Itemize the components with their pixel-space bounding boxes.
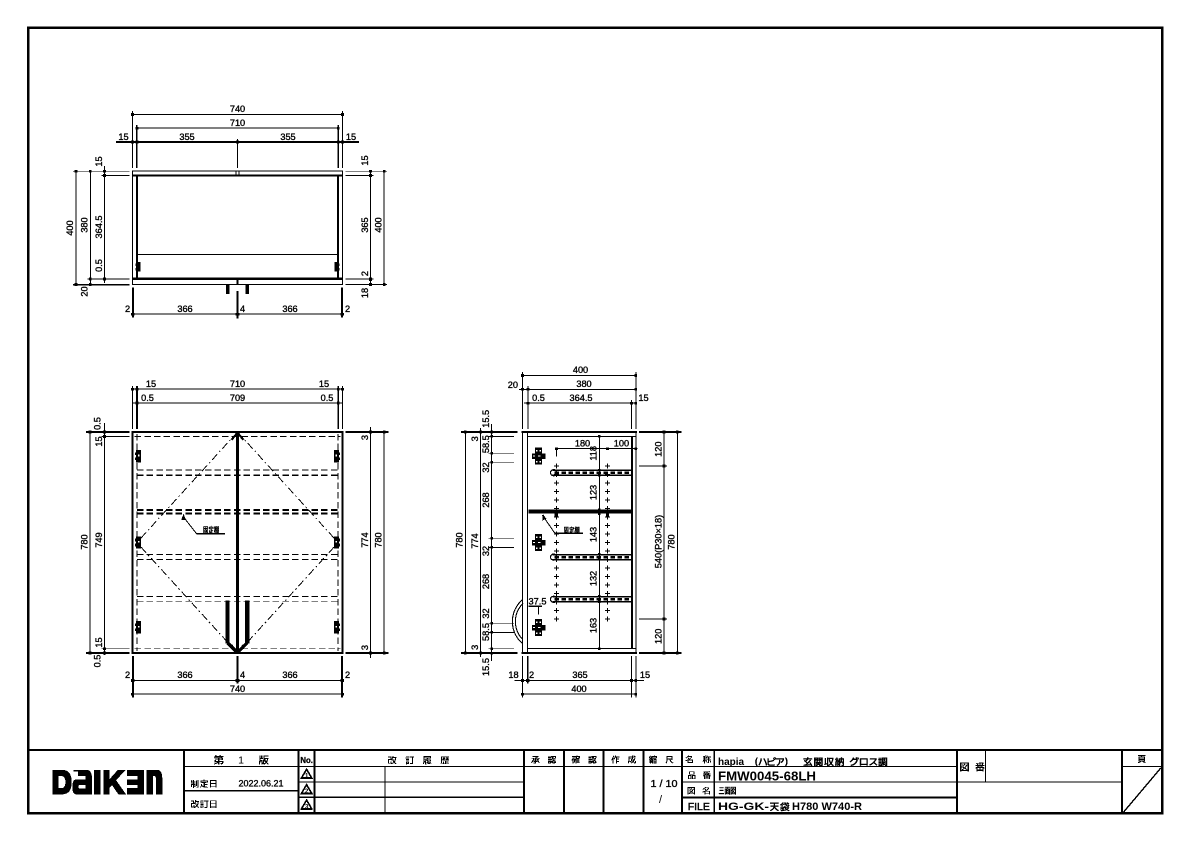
svg-text:0.5: 0.5 xyxy=(93,417,103,430)
svg-text:15: 15 xyxy=(346,132,356,142)
svg-text:143: 143 xyxy=(589,527,599,542)
svg-text:710: 710 xyxy=(230,379,245,389)
svg-text:FMW0045-68LH: FMW0045-68LH xyxy=(718,769,816,784)
svg-text:2022.06.21: 2022.06.21 xyxy=(239,779,284,789)
svg-text:780: 780 xyxy=(455,532,465,547)
svg-text:3: 3 xyxy=(305,803,309,810)
svg-text:364.5: 364.5 xyxy=(570,393,593,403)
svg-text:2: 2 xyxy=(305,788,309,795)
svg-text:780: 780 xyxy=(667,534,677,549)
svg-text:400: 400 xyxy=(573,365,588,375)
svg-text:123: 123 xyxy=(589,485,599,500)
svg-text:H780 W740-R: H780 W740-R xyxy=(792,801,862,813)
svg-text:15: 15 xyxy=(94,156,104,166)
svg-text:15.5: 15.5 xyxy=(481,658,491,676)
svg-text:18: 18 xyxy=(360,288,370,298)
svg-text:0.5: 0.5 xyxy=(141,393,154,403)
svg-text:2: 2 xyxy=(345,670,350,680)
svg-text:400: 400 xyxy=(65,220,75,235)
svg-text:15: 15 xyxy=(146,379,156,389)
svg-text:15: 15 xyxy=(94,637,104,647)
svg-text:400: 400 xyxy=(374,217,384,232)
svg-text:364.5: 364.5 xyxy=(94,216,104,239)
svg-text:355: 355 xyxy=(179,132,194,142)
svg-text:163: 163 xyxy=(589,618,599,633)
svg-text:132: 132 xyxy=(589,571,599,586)
svg-text:1 / 10: 1 / 10 xyxy=(651,779,678,790)
svg-text:FILE: FILE xyxy=(688,801,710,813)
svg-text:355: 355 xyxy=(280,132,295,142)
svg-text:HG-GK-: HG-GK- xyxy=(718,801,769,813)
svg-text:0.5: 0.5 xyxy=(93,655,103,668)
svg-text:749: 749 xyxy=(94,532,104,547)
svg-text:740: 740 xyxy=(230,104,245,114)
svg-text:hapia: hapia xyxy=(718,757,745,768)
svg-text:366: 366 xyxy=(282,304,297,314)
svg-text:366: 366 xyxy=(177,304,192,314)
svg-text:4: 4 xyxy=(240,670,245,680)
svg-text:2: 2 xyxy=(125,670,130,680)
svg-text:3: 3 xyxy=(360,435,370,440)
svg-text:100: 100 xyxy=(614,438,629,448)
svg-text:365: 365 xyxy=(572,670,587,680)
svg-text:2: 2 xyxy=(360,271,370,276)
svg-text:4: 4 xyxy=(240,304,245,314)
svg-text:366: 366 xyxy=(282,670,297,680)
svg-text:15: 15 xyxy=(640,670,650,680)
svg-text:2: 2 xyxy=(125,304,130,314)
svg-text:540(P30×18): 540(P30×18) xyxy=(653,515,663,568)
svg-text:32: 32 xyxy=(481,608,491,618)
svg-text:0.5: 0.5 xyxy=(321,393,334,403)
svg-text:0.5: 0.5 xyxy=(532,393,545,403)
svg-text:709: 709 xyxy=(230,393,245,403)
svg-text:780: 780 xyxy=(79,534,89,549)
svg-text:365: 365 xyxy=(360,217,370,232)
svg-text:180: 180 xyxy=(575,438,590,448)
svg-text:15: 15 xyxy=(638,393,648,403)
svg-text:15.5: 15.5 xyxy=(481,410,491,428)
svg-text:268: 268 xyxy=(481,574,491,589)
svg-text:15: 15 xyxy=(118,132,128,142)
svg-text:2: 2 xyxy=(529,670,534,680)
svg-text:15: 15 xyxy=(94,436,104,446)
svg-text:37.5: 37.5 xyxy=(529,596,547,606)
svg-text:20: 20 xyxy=(508,380,518,390)
svg-text:3: 3 xyxy=(470,436,480,441)
svg-text:0.5: 0.5 xyxy=(94,259,104,272)
svg-text:15: 15 xyxy=(319,379,329,389)
svg-text:2: 2 xyxy=(345,304,350,314)
svg-text:3: 3 xyxy=(470,645,480,650)
svg-text:No.: No. xyxy=(300,756,313,765)
svg-text:18: 18 xyxy=(508,670,518,680)
svg-text:15: 15 xyxy=(360,155,370,165)
svg-text:366: 366 xyxy=(177,670,192,680)
svg-text:740: 740 xyxy=(230,684,245,694)
svg-text:380: 380 xyxy=(80,217,90,232)
svg-text:3: 3 xyxy=(360,645,370,650)
svg-text:710: 710 xyxy=(230,118,245,128)
svg-text:780: 780 xyxy=(374,532,384,547)
svg-text:20: 20 xyxy=(80,286,90,296)
svg-text:380: 380 xyxy=(576,379,591,389)
svg-text:774: 774 xyxy=(470,533,480,548)
svg-text:32: 32 xyxy=(481,462,491,472)
svg-text:774: 774 xyxy=(360,532,370,547)
svg-text:1: 1 xyxy=(238,755,244,767)
svg-text:58.5: 58.5 xyxy=(481,435,491,453)
svg-text:268: 268 xyxy=(481,492,491,507)
svg-text:120: 120 xyxy=(653,442,663,457)
svg-text:120: 120 xyxy=(653,629,663,644)
svg-text:1: 1 xyxy=(305,773,309,780)
svg-text:400: 400 xyxy=(571,684,586,694)
